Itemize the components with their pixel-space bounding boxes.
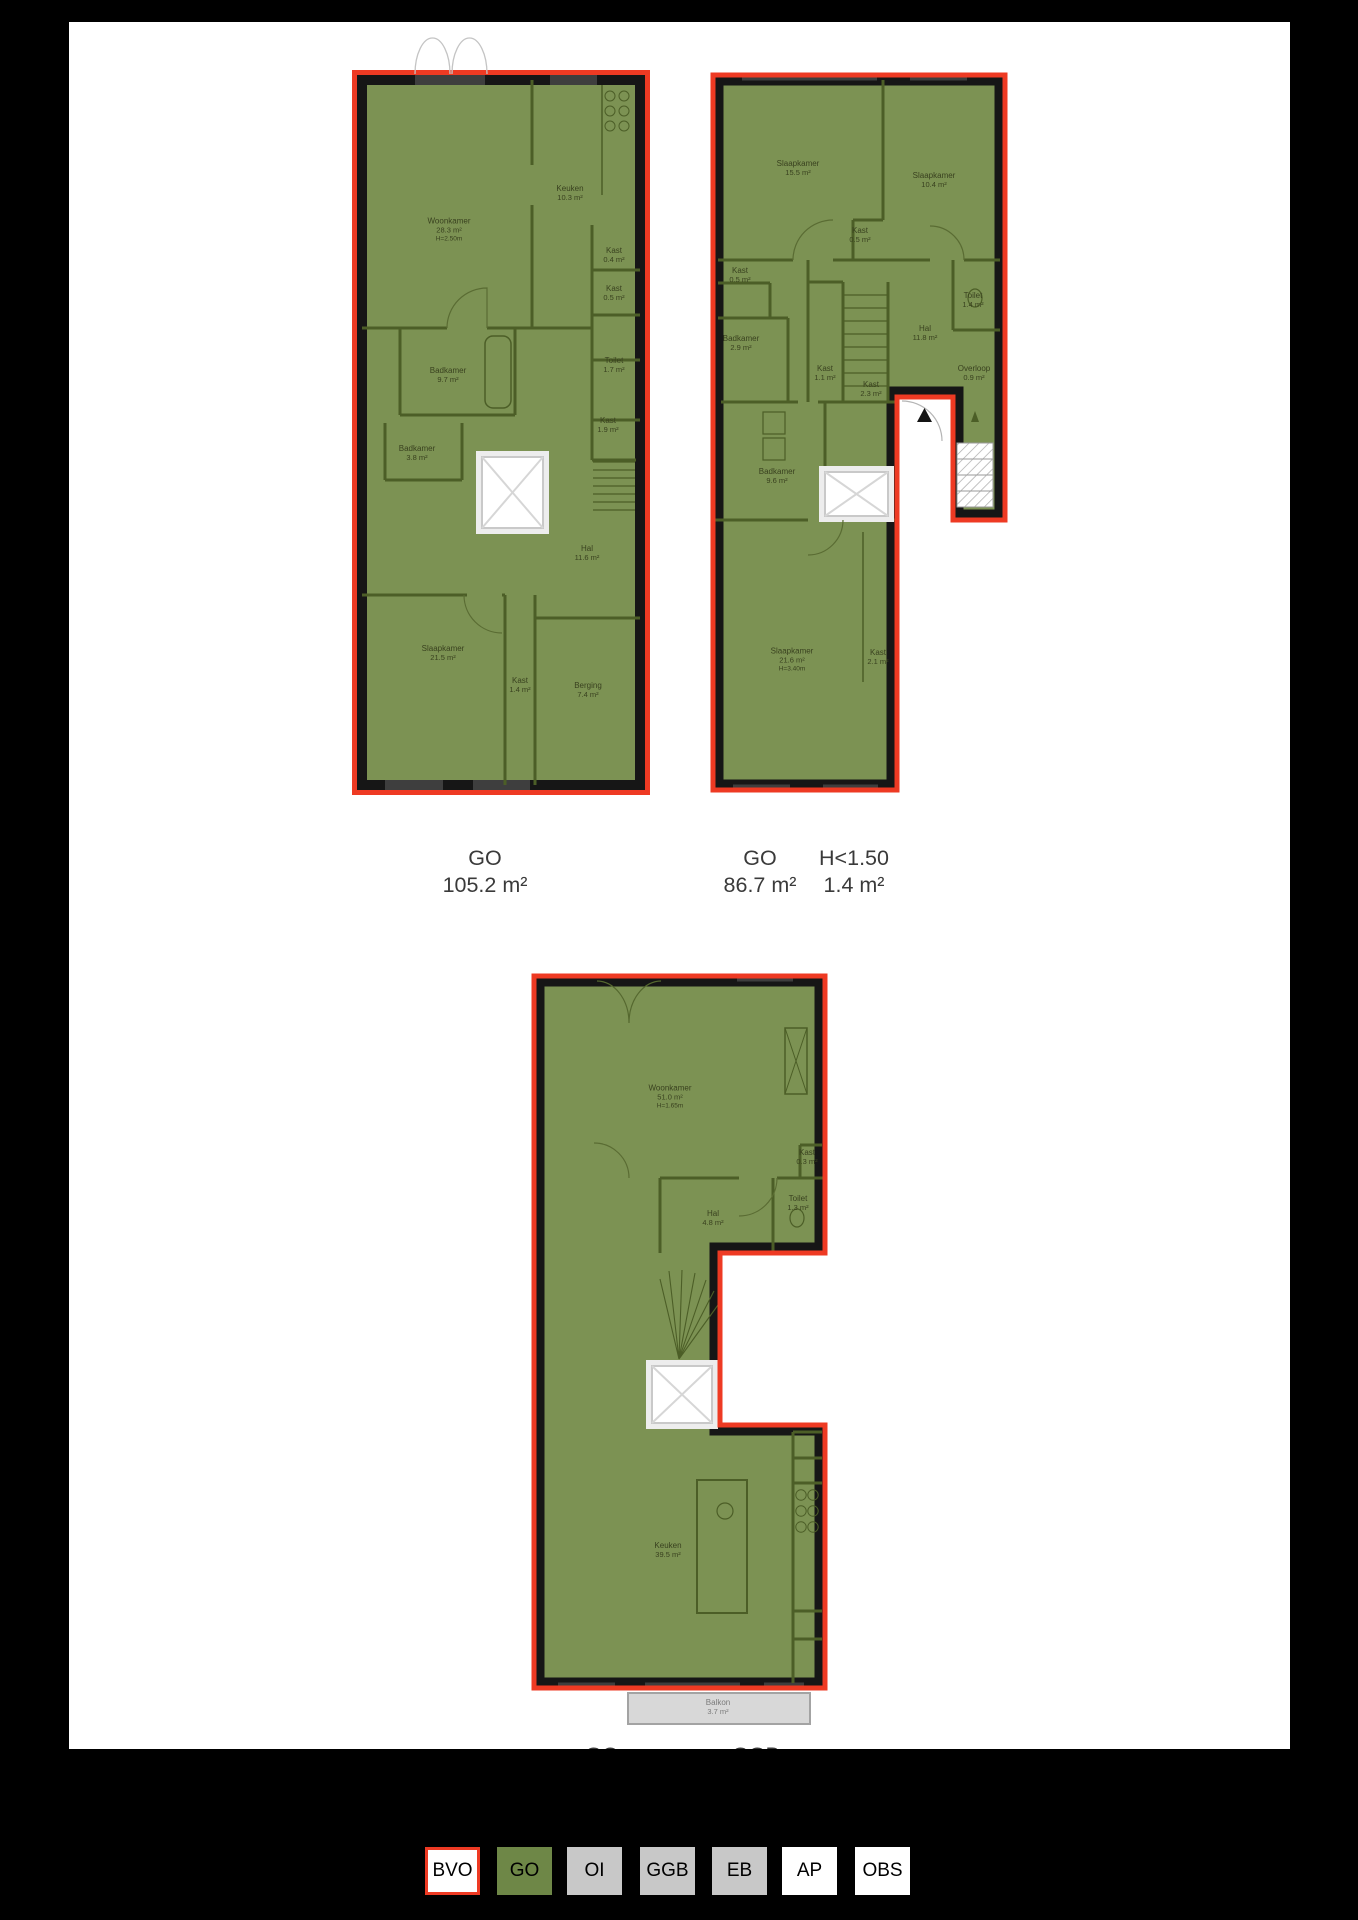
room-name: Slaapkamer	[422, 644, 465, 653]
room-name: Badkamer	[759, 467, 795, 476]
room-name: Hal	[702, 1209, 723, 1218]
room-label-badkamer: Badkamer9.7 m²	[430, 366, 466, 384]
legend-item-eb: EB	[712, 1847, 767, 1895]
go-value: 105.2 m²	[440, 872, 530, 899]
room-label-woonkamer: Woonkamer51.0 m²H=1.65m	[649, 1084, 692, 1111]
balcony-door-arcs	[412, 33, 490, 75]
room-area: 4.8 m²	[702, 1218, 723, 1227]
room-label-badkamer: Badkamer3.8 m²	[399, 444, 435, 462]
room-name: Hal	[913, 324, 938, 333]
room-name: Keuken	[556, 184, 583, 193]
room-name: Balkon	[706, 1698, 730, 1707]
room-label-kast: Kast0.3 m²	[796, 1148, 817, 1166]
room-name: Toilet	[787, 1194, 808, 1203]
room-label-kast: Kast2.1 m²	[867, 648, 888, 666]
room-label-balkon: Balkon3.7 m²	[706, 1698, 730, 1716]
room-name: Keuken	[654, 1541, 681, 1550]
room-area: 3.8 m²	[399, 453, 435, 462]
legend-item-obs: OBS	[855, 1847, 910, 1895]
room-label-keuken: Keuken39.5 m²	[654, 1541, 681, 1559]
room-area: 1.4 m²	[962, 300, 983, 309]
room-name: Slaapkamer	[777, 159, 820, 168]
room-area: 11.8 m²	[913, 333, 938, 342]
room-name: Kast	[796, 1148, 817, 1157]
room-name: Badkamer	[430, 366, 466, 375]
room-label-toilet: Toilet1.4 m²	[962, 291, 983, 309]
room-area: 1.7 m²	[603, 365, 624, 374]
floorplan-3: Woonkamer51.0 m²H=1.65mKast0.3 m²Toilet1…	[529, 971, 830, 1731]
room-area: 0.4 m²	[603, 255, 624, 264]
room-area: 1.4 m²	[509, 685, 530, 694]
entrance-arrow	[917, 408, 932, 422]
go-title: GO	[440, 845, 530, 872]
room-label-slaapkamer: Slaapkamer10.4 m²	[913, 171, 956, 189]
entrance	[902, 401, 942, 441]
room-name: Kast	[603, 246, 624, 255]
room-label-overloop: Overloop0.9 m²	[958, 364, 990, 382]
legend: BVOGOOIGGBEBAPOBS	[0, 1847, 1358, 1895]
room-area: 0.5 m²	[603, 293, 624, 302]
room-label-hal: Hal4.8 m²	[702, 1209, 723, 1227]
room-label-slaapkamer: Slaapkamer21.5 m²	[422, 644, 465, 662]
room-label-berging: Berging7.4 m²	[574, 681, 602, 699]
h150-title: H<1.50	[809, 845, 899, 872]
room-area: 10.4 m²	[913, 180, 956, 189]
room-name: Kast	[509, 676, 530, 685]
room-label-keuken: Keuken10.3 m²	[556, 184, 583, 202]
legend-item-go: GO	[497, 1847, 552, 1895]
room-name: Toilet	[603, 356, 624, 365]
room-label-badkamer: Badkamer2.9 m²	[723, 334, 759, 352]
floorplan-2-drawing	[708, 70, 1010, 795]
room-name: Kast	[860, 380, 881, 389]
room-label-woonkamer: Woonkamer28.3 m²H=2.50m	[428, 217, 471, 244]
room-area: 0.5 m²	[729, 275, 750, 284]
room-area: 2.1 m²	[867, 657, 888, 666]
room-area: 10.3 m²	[556, 193, 583, 202]
cut-title: GO	[557, 1742, 647, 1749]
floorplan-1: Woonkamer28.3 m²H=2.50mKeuken10.3 m²Kast…	[352, 70, 650, 795]
room-area: 0.3 m²	[796, 1157, 817, 1166]
room-name: Hal	[575, 544, 600, 553]
room-label-hal: Hal11.8 m²	[913, 324, 938, 342]
room-label-kast: Kast1.9 m²	[597, 416, 618, 434]
room-name: Badkamer	[399, 444, 435, 453]
legend-item-bvo: BVO	[425, 1847, 480, 1895]
room-label-kast: Kast0.4 m²	[603, 246, 624, 264]
room-area: 21.5 m²	[422, 653, 465, 662]
room-label-slaapkamer: Slaapkamer15.5 m²	[777, 159, 820, 177]
room-label-toilet: Toilet1.3 m²	[787, 1194, 808, 1212]
room-name: Kast	[814, 364, 835, 373]
room-area: 1.9 m²	[597, 425, 618, 434]
room-area: 3.7 m²	[706, 1707, 730, 1716]
go-value: 86.7 m²	[715, 872, 805, 899]
room-name: Kast	[729, 266, 750, 275]
cut-title: GGB	[711, 1742, 801, 1749]
legend-item-ap: AP	[782, 1847, 837, 1895]
room-name: Badkamer	[723, 334, 759, 343]
legend-item-oi: OI	[567, 1847, 622, 1895]
room-area: 7.4 m²	[574, 690, 602, 699]
room-area: 1.1 m²	[814, 373, 835, 382]
room-name: Kast	[849, 226, 870, 235]
room-area: 15.5 m²	[777, 168, 820, 177]
room-area: 2.3 m²	[860, 389, 881, 398]
go-title: GO	[715, 845, 805, 872]
room-area: 1.3 m²	[787, 1203, 808, 1212]
room-label-kast: Kast1.1 m²	[814, 364, 835, 382]
room-label-slaapkamer: Slaapkamer21.6 m²H=3.40m	[771, 647, 814, 674]
room-height-note: H=1.65m	[649, 1103, 692, 1111]
floorplan-2: Slaapkamer15.5 m²Slaapkamer10.4 m²Kast0.…	[708, 70, 1010, 795]
room-label-kast: Kast0.5 m²	[603, 284, 624, 302]
room-area: 28.3 m²	[428, 226, 471, 235]
stair-wall	[636, 458, 645, 518]
room-name: Kast	[603, 284, 624, 293]
room-height-note: H=3.40m	[771, 666, 814, 674]
room-name: Slaapkamer	[771, 647, 814, 656]
room-area: 11.6 m²	[575, 553, 600, 562]
go-label-floor3-cut: GO	[557, 1742, 647, 1749]
floorplan-page: Woonkamer28.3 m²H=2.50mKeuken10.3 m²Kast…	[69, 22, 1290, 1749]
room-area: 9.7 m²	[430, 375, 466, 384]
h150-value: 1.4 m²	[809, 872, 899, 899]
go-label-floor1: GO 105.2 m²	[440, 845, 530, 899]
room-name: Woonkamer	[428, 217, 471, 226]
room-label-toilet: Toilet1.7 m²	[603, 356, 624, 374]
room-area: 9.6 m²	[759, 476, 795, 485]
room-area: 0.9 m²	[958, 373, 990, 382]
room-name: Berging	[574, 681, 602, 690]
room-area: 2.9 m²	[723, 343, 759, 352]
room-name: Kast	[867, 648, 888, 657]
room-area: 51.0 m²	[649, 1093, 692, 1102]
room-label-kast: Kast0.5 m²	[729, 266, 750, 284]
ggb-label-floor3-cut: GGB	[711, 1742, 801, 1749]
legend-item-ggb: GGB	[640, 1847, 695, 1895]
room-name: Woonkamer	[649, 1084, 692, 1093]
room-name: Overloop	[958, 364, 990, 373]
room-label-kast: Kast1.4 m²	[509, 676, 530, 694]
elevator-shaft	[819, 466, 894, 522]
room-label-badkamer: Badkamer9.6 m²	[759, 467, 795, 485]
go-label-floor2: GO 86.7 m²	[715, 845, 805, 899]
elevator-shaft	[476, 451, 549, 534]
room-label-hal: Hal11.6 m²	[575, 544, 600, 562]
h150-label-floor2: H<1.50 1.4 m²	[809, 845, 899, 899]
room-area: 39.5 m²	[654, 1550, 681, 1559]
elevator-shaft	[646, 1360, 718, 1429]
room-name: Toilet	[962, 291, 983, 300]
room-area: 21.6 m²	[771, 656, 814, 665]
room-name: Kast	[597, 416, 618, 425]
room-label-kast: Kast2.3 m²	[860, 380, 881, 398]
room-label-kast: Kast0.5 m²	[849, 226, 870, 244]
room-height-note: H=2.50m	[428, 236, 471, 244]
screenshot-root: { "document": { "type": "floorplan-measu…	[0, 0, 1358, 1920]
room-name: Slaapkamer	[913, 171, 956, 180]
room-area: 0.5 m²	[849, 235, 870, 244]
